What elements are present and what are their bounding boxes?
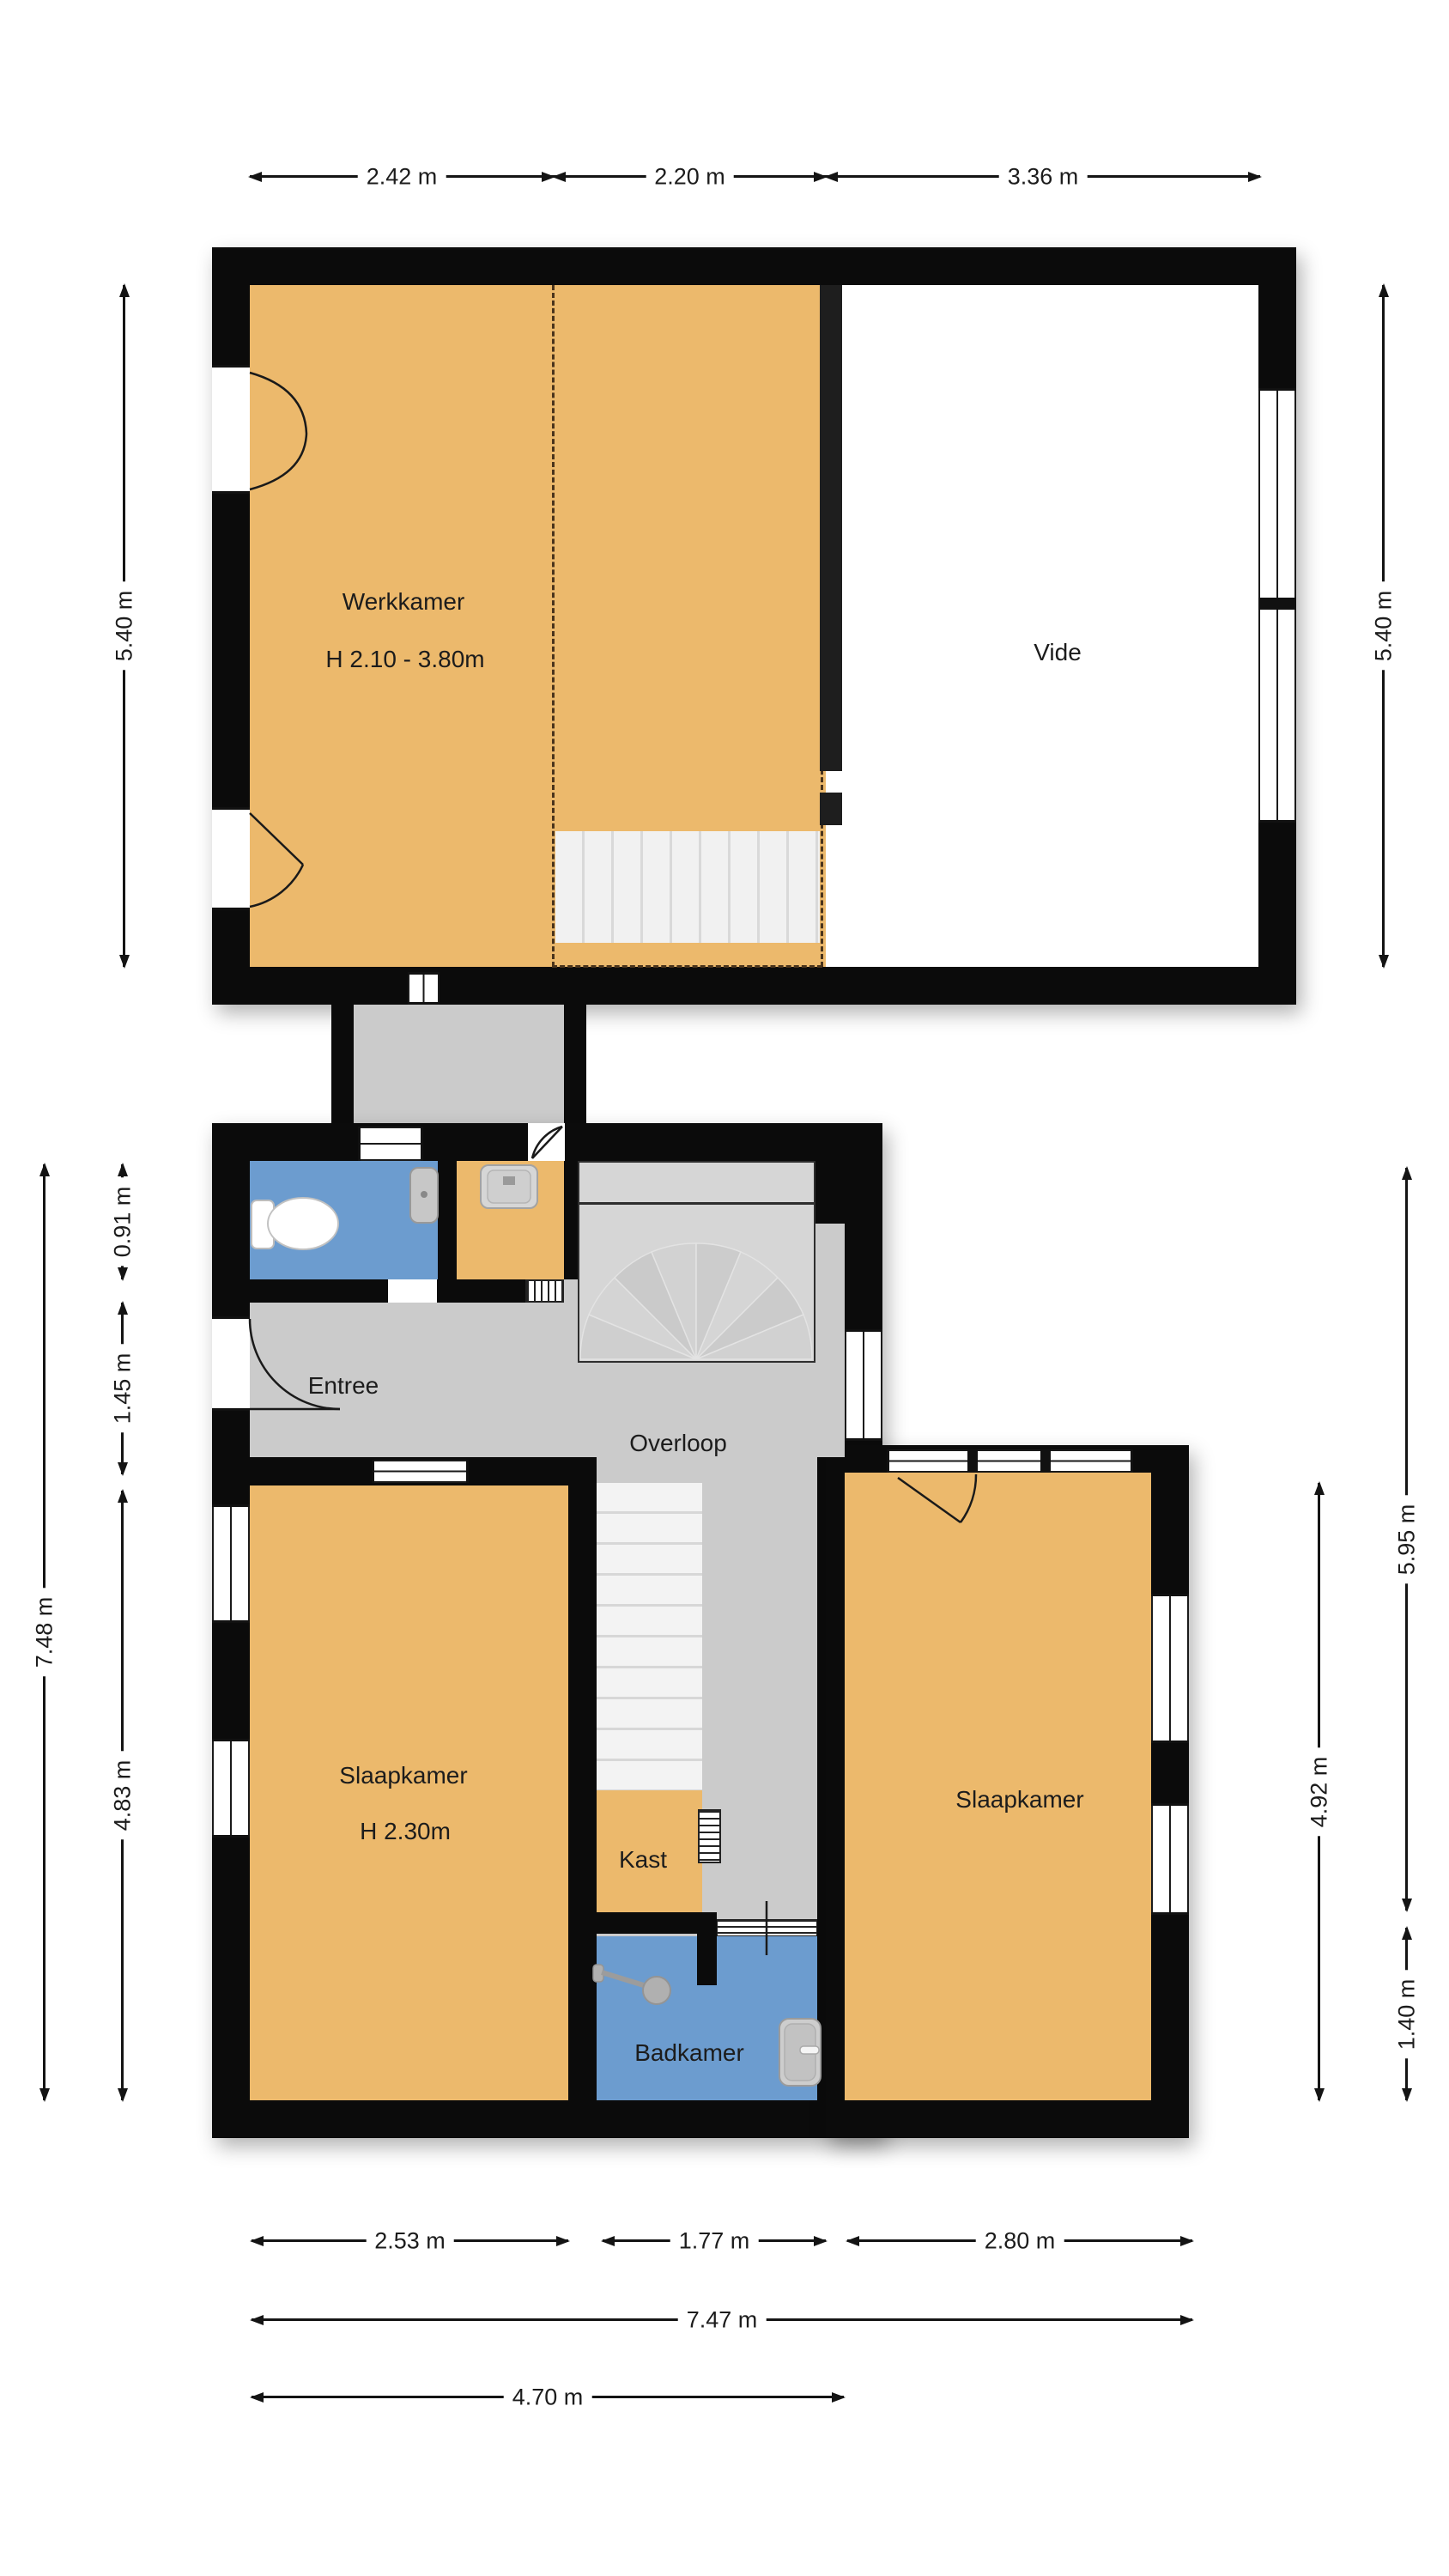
dim-lower-right-2: 4.92 m [1318, 1483, 1320, 2100]
window-post [967, 1449, 978, 1473]
window-post [1258, 598, 1296, 610]
upper-stairs [555, 831, 820, 943]
label-vide: Vide [1034, 639, 1082, 666]
dim-top-3: 3.36 m [826, 175, 1260, 178]
dim-bottom-3: 2.80 m [847, 2239, 1192, 2242]
partition-wall-stub [820, 793, 842, 825]
dim-lower-left-1: 0.91 m [121, 1164, 124, 1279]
label-entree: Entree [308, 1372, 379, 1400]
top-wall-window [358, 1127, 423, 1161]
dashed-line-height-zone-1 [552, 285, 555, 967]
dim-top-1: 2.42 m [250, 175, 554, 178]
wing-top-window [887, 1449, 1133, 1473]
slaapkamer-left-right-wall [568, 1457, 597, 2100]
label-slaapkamer-left: Slaapkamer [339, 1762, 467, 1789]
partition-wall [820, 285, 842, 771]
dim-bottom-1: 2.53 m [252, 2239, 568, 2242]
winder-stairs-zone [578, 1161, 815, 1363]
connector-door-gap [528, 1123, 565, 1161]
closet-bottom-wall [437, 1279, 525, 1303]
badkamer-wall-stub [697, 1913, 717, 1985]
floorplan: Werkkamer H 2.10 - 3.80m Vide Entree Ove… [0, 0, 1449, 2576]
label-slaapkamer-right: Slaapkamer [955, 1786, 1083, 1814]
dim-bottom-2: 1.77 m [603, 2239, 826, 2242]
label-badkamer: Badkamer [634, 2039, 744, 2067]
badkamer-sliding-door [717, 1919, 817, 1936]
dim-top-2: 2.20 m [554, 175, 826, 178]
room-slaapkamer-left [250, 1485, 568, 2100]
connector-wall-right [564, 1005, 586, 1123]
dim-upper-left: 5.40 m [123, 285, 125, 967]
toilet-right-wall [438, 1161, 457, 1279]
connector-hall [354, 1005, 564, 1123]
label-slaapkamer-left-height: H 2.30m [360, 1818, 451, 1845]
dim-bottom-total: 7.47 m [252, 2318, 1192, 2321]
dim-lower-right-3: 1.40 m [1405, 1928, 1408, 2100]
left-window-2 [212, 1739, 250, 1838]
entree-front-door-opening [212, 1316, 250, 1411]
dim-lower-left-3: 4.83 m [121, 1491, 124, 2100]
label-overloop: Overloop [629, 1430, 727, 1457]
toilet-door-gap [388, 1279, 437, 1303]
dim-upper-right: 5.40 m [1382, 285, 1385, 967]
label-werkkamer: Werkkamer [343, 588, 465, 616]
upper-bottom-window [408, 972, 440, 1005]
stair-right-wall [815, 1161, 847, 1224]
room-closet-sink [457, 1161, 564, 1279]
wing-right-window-2 [1151, 1803, 1189, 1915]
toilet-bottom-wall [250, 1279, 388, 1303]
dim-bottom-partial: 4.70 m [252, 2396, 844, 2398]
dim-lower-right-1: 5.95 m [1405, 1168, 1408, 1911]
slaapkamer-left-door-band [372, 1460, 469, 1483]
dim-lower-left-2: 1.45 m [121, 1303, 124, 1474]
overloop-right-window [845, 1329, 882, 1441]
room-vide [826, 285, 1258, 967]
left-window-1 [212, 1504, 250, 1623]
upper-left-double-door-opening [212, 365, 250, 494]
dashed-line-height-zone-3 [552, 965, 822, 968]
closet-louver-door [525, 1279, 564, 1303]
upper-left-door-opening [212, 807, 250, 910]
label-werkkamer-height: H 2.10 - 3.80m [325, 646, 484, 673]
dim-lower-left-total: 7.48 m [43, 1164, 45, 2100]
wing-right-window-1 [1151, 1594, 1189, 1743]
room-toilet [250, 1161, 438, 1279]
connector-wall-left [331, 1005, 354, 1123]
closet-right-wall [564, 1161, 578, 1279]
stair-landing-line [579, 1202, 814, 1205]
window-post [1040, 1449, 1051, 1473]
label-kast: Kast [619, 1846, 667, 1874]
lower-stairs [597, 1483, 702, 1790]
kast-louver-door [698, 1809, 721, 1863]
